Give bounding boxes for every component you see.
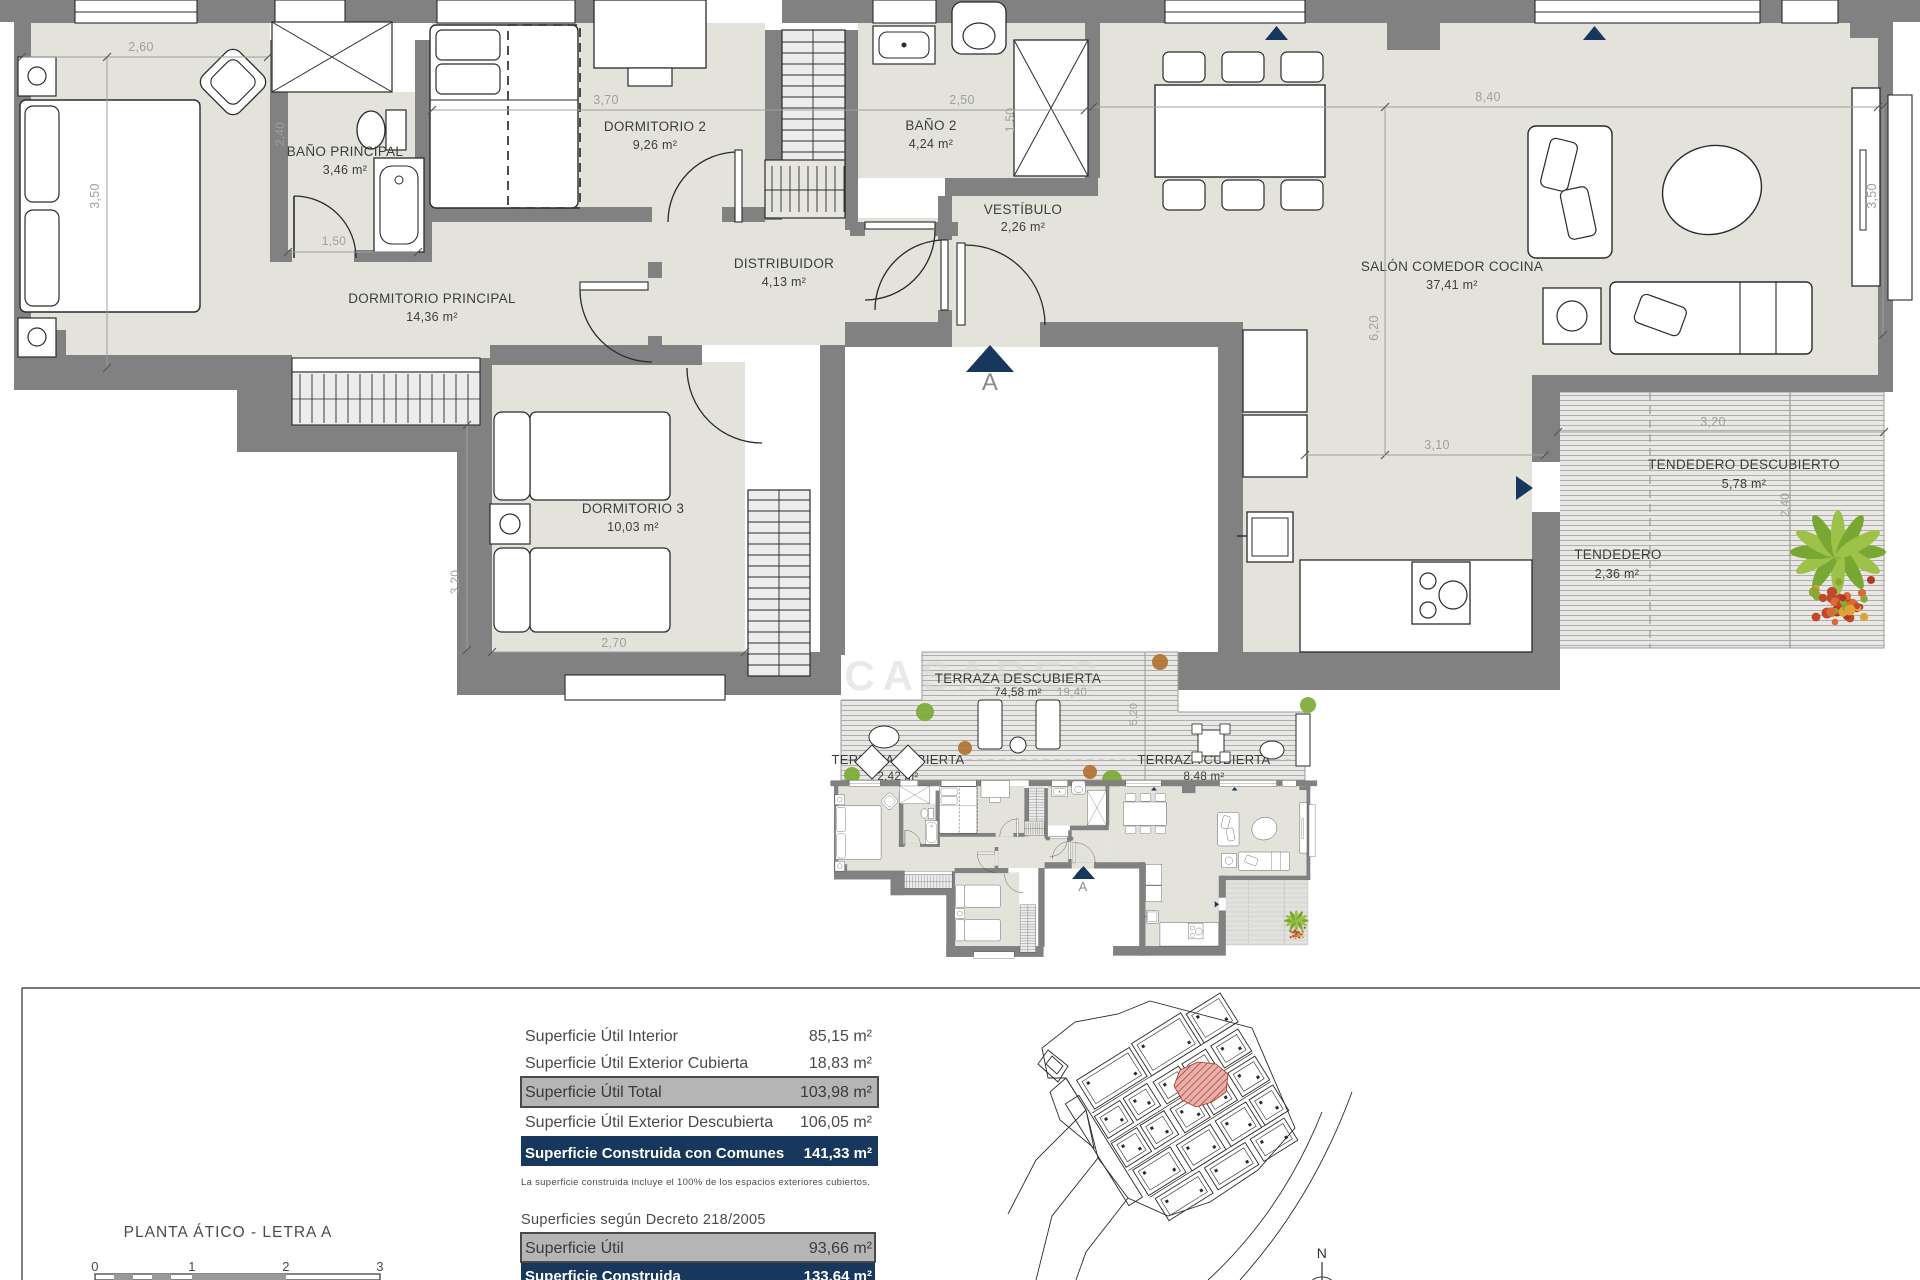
svg-text:2,36 m²: 2,36 m² <box>1595 567 1639 581</box>
svg-text:Superficie Útil Interior: Superficie Útil Interior <box>525 1026 679 1045</box>
svg-text:N: N <box>1317 1245 1327 1261</box>
svg-text:3,50: 3,50 <box>1865 183 1879 209</box>
svg-text:Superficie Construida con Comu: Superficie Construida con Comunes <box>525 1145 784 1162</box>
svg-text:0: 0 <box>91 1259 99 1274</box>
svg-text:La superficie construida inclu: La superficie construida incluye el 100%… <box>521 1177 870 1188</box>
svg-text:2,70: 2,70 <box>601 636 627 650</box>
svg-text:Superficie Útil Exterior Descu: Superficie Útil Exterior Descubierta <box>525 1112 773 1131</box>
svg-text:PLANTA ÁTICO - LETRA A: PLANTA ÁTICO - LETRA A <box>124 1224 333 1241</box>
svg-text:8,40: 8,40 <box>1475 90 1501 104</box>
svg-text:18,83 m²: 18,83 m² <box>809 1055 873 1072</box>
svg-text:DORMITORIO 2: DORMITORIO 2 <box>604 119 706 134</box>
svg-text:3,20: 3,20 <box>448 570 462 595</box>
svg-text:3,10: 3,10 <box>1424 438 1450 452</box>
svg-text:2,40: 2,40 <box>1778 493 1792 518</box>
svg-text:DORMITORIO PRINCIPAL: DORMITORIO PRINCIPAL <box>348 291 516 306</box>
svg-text:TENDEDERO: TENDEDERO <box>1574 547 1661 562</box>
svg-text:Superficie Construida: Superficie Construida <box>525 1268 682 1280</box>
svg-text:DISTRIBUIDOR: DISTRIBUIDOR <box>734 256 834 271</box>
svg-text:85,15 m²: 85,15 m² <box>809 1028 873 1045</box>
svg-text:133,64 m²: 133,64 m² <box>804 1268 872 1280</box>
svg-text:SALÓN COMEDOR COCINA: SALÓN COMEDOR COCINA <box>1361 259 1543 274</box>
svg-text:37,41 m²: 37,41 m² <box>1426 278 1478 292</box>
svg-text:TERRAZA DESCUBIERTA: TERRAZA DESCUBIERTA <box>935 671 1101 686</box>
svg-text:BAÑO PRINCIPAL: BAÑO PRINCIPAL <box>287 144 404 159</box>
svg-text:19,40: 19,40 <box>1057 687 1087 699</box>
svg-text:2: 2 <box>282 1259 290 1274</box>
svg-text:3,50: 3,50 <box>88 183 102 209</box>
svg-text:TENDEDERO DESCUBIERTO: TENDEDERO DESCUBIERTO <box>1648 457 1840 472</box>
svg-text:3,46 m²: 3,46 m² <box>323 163 367 177</box>
svg-text:1,50: 1,50 <box>1003 108 1017 133</box>
svg-text:141,33 m²: 141,33 m² <box>804 1145 872 1162</box>
svg-text:Superficies según Decreto 218/: Superficies según Decreto 218/2005 <box>521 1212 766 1228</box>
svg-text:5,20: 5,20 <box>1128 703 1140 726</box>
svg-text:4,24 m²: 4,24 m² <box>909 137 953 151</box>
svg-text:BAÑO 2: BAÑO 2 <box>905 118 956 133</box>
svg-text:A: A <box>1079 879 1088 894</box>
svg-text:14,36 m²: 14,36 m² <box>406 310 458 324</box>
svg-text:2,60: 2,60 <box>128 40 154 54</box>
svg-text:5,78 m²: 5,78 m² <box>1722 477 1766 491</box>
svg-text:1: 1 <box>188 1259 196 1274</box>
svg-text:A: A <box>982 369 998 396</box>
svg-text:10,03 m²: 10,03 m² <box>607 520 659 534</box>
svg-text:74,58 m²: 74,58 m² <box>994 687 1042 699</box>
svg-text:Superficie Útil Total: Superficie Útil Total <box>525 1082 662 1101</box>
svg-text:2,50: 2,50 <box>949 93 975 107</box>
svg-text:1,50: 1,50 <box>322 234 347 248</box>
svg-text:Superficie Útil Exterior Cubie: Superficie Útil Exterior Cubierta <box>525 1053 748 1072</box>
svg-text:3: 3 <box>376 1259 384 1274</box>
svg-text:VESTÍBULO: VESTÍBULO <box>984 202 1062 217</box>
svg-text:106,05 m²: 106,05 m² <box>800 1114 873 1131</box>
svg-text:3,20: 3,20 <box>1700 415 1726 429</box>
svg-text:3,70: 3,70 <box>593 93 619 107</box>
svg-text:9,26 m²: 9,26 m² <box>633 138 677 152</box>
svg-text:93,66 m²: 93,66 m² <box>809 1240 873 1257</box>
svg-text:2,26 m²: 2,26 m² <box>1001 220 1045 234</box>
svg-text:103,98 m²: 103,98 m² <box>800 1084 873 1101</box>
svg-text:4,13 m²: 4,13 m² <box>762 275 806 289</box>
svg-text:Superficie Útil: Superficie Útil <box>525 1238 624 1257</box>
svg-text:DORMITORIO 3: DORMITORIO 3 <box>582 501 684 516</box>
svg-text:6,20: 6,20 <box>1367 315 1381 341</box>
svg-text:2,40: 2,40 <box>273 122 287 147</box>
